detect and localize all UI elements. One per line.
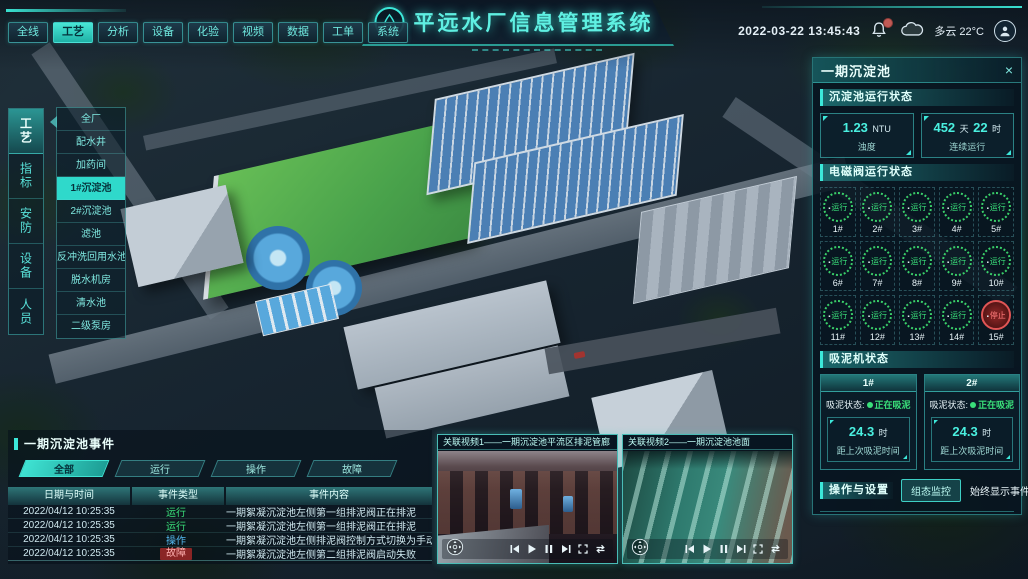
left-sidebar: 工艺 指标 安防 设备 人员 [8,108,44,335]
submenu-item-qingshuichi[interactable]: 清水池 [57,292,125,315]
valve-gauge: 运行7# [860,241,896,291]
valve-status: 运行 [987,202,1006,213]
mud-time-card: 24.3 时 距上次吸泥时间 [827,417,910,462]
sidebar-tab-shebei[interactable]: 设备 [9,244,43,289]
page-title: 平远水厂信息管理系统 [414,7,654,37]
mud-time-label: 距上次吸泥时间 [932,444,1013,457]
mud-machine-status-row: 吸泥状态:正在吸泥 [925,392,1020,415]
valve-gauge: 运行11# [820,295,856,345]
event-content: 一期絮凝沉淀池左侧第二组排泥阀启动失败 [222,546,432,561]
valve-id: 5# [979,224,1013,234]
video-panel-1: 关联视频1——一期沉淀池平流区排泥管廊 [437,434,618,564]
events-title: 一期沉淀池事件 [24,435,115,452]
event-tab-label: 运行 [150,461,170,476]
nav-tab-shipin[interactable]: 视频 [233,22,273,43]
section-title-mud-machines: 吸泥机状态 [820,351,1014,368]
datetime-text: 2022-03-22 13:45:43 [738,24,860,38]
table-row[interactable]: 2022/04/12 10:25:35 故障 一期絮凝沉淀池左侧第二组排泥阀启动… [8,547,432,561]
turbidity-label: 浊度 [821,140,913,153]
play-button[interactable] [702,544,712,554]
uptime-hours-unit: 时 [992,124,1001,134]
top-decoration-line [762,6,1022,8]
always-show-events-label: 始终显示事件: [970,483,1028,498]
table-row[interactable]: 2022/04/12 10:25:35 操作 一期絮凝沉淀池左侧排泥阀控制方式切… [8,533,432,547]
valve-id: 15# [979,332,1013,342]
valve-gauge: 运行6# [820,241,856,291]
event-time: 2022/04/12 10:25:35 [8,534,130,545]
operations-row: 操作与设置 组态监控 始终显示事件: [820,479,1014,512]
mud-time-unit: 时 [982,428,991,438]
top-nav: 全线 工艺 分析 设备 化验 视频 数据 工单 系统 [8,22,408,43]
sidebar-tab-renyuan[interactable]: 人员 [9,289,43,334]
event-tab-run[interactable]: 运行 [115,460,206,477]
process-submenu: 全厂 配水井 加药间 1#沉淀池 2#沉淀池 滤池 反冲洗回用水池 脱水机房 清… [56,107,126,339]
valve-id: 1# [821,224,855,234]
valve-id: 4# [940,224,974,234]
title-accent-bar [14,438,18,450]
valve-status: 运行 [907,256,926,267]
play-button[interactable] [527,544,537,554]
event-content: 一期絮凝沉淀池左侧排泥阀控制方式切换为手动 [222,532,432,547]
loop-button[interactable] [595,544,606,554]
scada-monitor-button[interactable]: 组态监控 [901,479,961,502]
nav-tab-gongdan[interactable]: 工单 [323,22,363,43]
video-thumbnail-detail [623,451,792,469]
submenu-item-peishuijing[interactable]: 配水井 [57,131,125,154]
valve-id: 8# [900,278,934,288]
sidebar-tab-gongyi[interactable]: 工艺 [9,109,43,154]
uptime-label: 连续运行 [922,140,1014,153]
previous-frame-button[interactable] [685,544,695,554]
submenu-item-jiayaojian[interactable]: 加药间 [57,154,125,177]
next-frame-button[interactable] [561,544,571,554]
valve-id: 7# [861,278,895,288]
submenu-item-tuoshuijifang[interactable]: 脱水机房 [57,269,125,292]
submenu-item-quanchang[interactable]: 全厂 [57,108,125,131]
mud-machine-card-1: 1# 吸泥状态:正在吸泥 24.3 时 距上次吸泥时间 [820,374,917,470]
video-controls [627,539,788,559]
uptime-hours: 22 [973,120,987,135]
events-table-header: 日期与时间 事件类型 事件内容 [8,487,432,505]
valve-status: 运行 [828,202,847,213]
events-title-row: 一期沉淀池事件 [8,435,432,452]
column-header-content: 事件内容 [226,487,432,505]
ptz-dpad-control[interactable] [446,538,464,561]
section-title-run-status: 沉淀池运行状态 [820,89,1014,106]
mud-time-card: 24.3 时 距上次吸泥时间 [931,417,1014,462]
valve-gauge: 运行8# [899,241,935,291]
mud-status-label: 吸泥状态: [930,400,969,410]
mud-machine-status-row: 吸泥状态:正在吸泥 [821,392,916,415]
valve-id: 14# [940,332,974,342]
video-panel-2: 关联视频2——一期沉淀池池面 [622,434,793,564]
event-tab-operate[interactable]: 操作 [211,460,302,477]
valve-gauge: 停止15# [978,295,1014,345]
event-content: 一期絮凝沉淀池左侧第一组排泥阀正在排泥 [222,504,432,519]
submenu-pointer [50,116,57,128]
pause-button[interactable] [544,544,554,554]
user-avatar[interactable] [994,20,1016,42]
mud-time-value: 24.3 [849,424,874,439]
event-type: 故障 [160,548,192,560]
valve-gauge: 运行1# [820,187,856,237]
uptime-card: 452 天 22 时 连续运行 [921,113,1015,158]
mud-status-value: 正在吸泥 [978,400,1014,410]
mud-time-label: 距上次吸泥时间 [828,444,909,457]
event-tab-label: 故障 [342,461,362,476]
mud-status-value: 正在吸泥 [875,400,911,410]
sedimentation-tank-panel: 一期沉淀池 × 沉淀池运行状态 1.23 NTU 浊度 452 天 22 时 连… [812,57,1022,515]
notification-badge [883,18,893,28]
turbidity-value: 1.23 [843,120,868,135]
video-thumbnail-detail [438,471,617,534]
valve-gauge: 运行14# [939,295,975,345]
column-header-type: 事件类型 [132,487,224,505]
submenu-item-fanchongxi[interactable]: 反冲洗回用水池 [57,246,125,269]
valve-status: 运行 [828,310,847,321]
mud-status-label: 吸泥状态: [826,400,865,410]
valve-id: 12# [861,332,895,342]
previous-frame-button[interactable] [510,544,520,554]
turbidity-unit: NTU [872,124,891,134]
valve-id: 3# [900,224,934,234]
fullscreen-button[interactable] [753,544,763,554]
nav-tab-gongyi[interactable]: 工艺 [53,22,93,43]
valve-status: 运行 [947,202,966,213]
valve-gauge: 运行2# [860,187,896,237]
panel-header: 一期沉淀池 × [813,58,1021,83]
section-title-valves: 电磁阀运行状态 [820,164,1014,181]
valve-status: 运行 [987,256,1006,267]
valve-status-grid: 运行1# 运行2# 运行3# 运行4# 运行5# 运行6# 运行7# 运行8# … [820,187,1014,345]
valve-gauge: 运行5# [978,187,1014,237]
video-thumbnail-detail [563,496,573,512]
nav-tab-fenxi[interactable]: 分析 [98,22,138,43]
weather-text: 多云 22°C [934,23,984,39]
section-title-operations: 操作与设置 [820,482,893,499]
fullscreen-button[interactable] [578,544,588,554]
app-brand: 平远水厂信息管理系统 [375,7,654,37]
event-time: 2022/04/12 10:25:35 [8,506,130,517]
video-title: 关联视频1——一期沉淀池平流区排泥管廊 [438,435,617,450]
mud-time-value: 24.3 [952,424,977,439]
valve-gauge: 运行10# [978,241,1014,291]
sidebar-tab-anfang[interactable]: 安防 [9,199,43,244]
top-decoration-line [6,9,126,12]
valve-status: 运行 [868,256,887,267]
dashboard: 平远水厂信息管理系统 全线 工艺 分析 设备 化验 视频 数据 工单 系统 20… [0,0,1028,579]
submenu-item-lvchi[interactable]: 滤池 [57,223,125,246]
valve-status: 运行 [868,310,887,321]
video-feed[interactable] [623,451,792,563]
event-type: 操作 [166,536,186,547]
valve-status: 停止 [987,310,1006,321]
valve-status: 运行 [868,202,887,213]
uptime-days: 452 [933,120,955,135]
events-panel: 一期沉淀池事件 全部 运行 操作 故障 日期与时间 事件类型 事件内容 2022… [8,430,432,564]
event-time: 2022/04/12 10:25:35 [8,548,130,559]
submenu-item-erjibengfang[interactable]: 二级泵房 [57,315,125,338]
valve-status: 运行 [907,202,926,213]
top-right-info: 2022-03-22 13:45:43 多云 22°C [738,20,1016,42]
nav-tab-shebei[interactable]: 设备 [143,22,183,43]
ptz-dpad-control[interactable] [631,538,649,561]
valve-gauge: 运行4# [939,187,975,237]
title-dash-line [472,49,602,51]
valve-gauge: 运行3# [899,187,935,237]
video-controls [442,539,613,559]
close-icon[interactable]: × [1005,63,1013,77]
valve-gauge: 运行9# [939,241,975,291]
turbidity-card: 1.23 NTU 浊度 [820,113,914,158]
run-status-cards: 1.23 NTU 浊度 452 天 22 时 连续运行 [820,113,1014,158]
event-time: 2022/04/12 10:25:35 [8,520,130,531]
event-tab-all[interactable]: 全部 [19,460,110,477]
valve-id: 11# [821,332,855,342]
event-filter-tabs: 全部 运行 操作 故障 [22,460,432,477]
nav-tab-quanxian[interactable]: 全线 [8,22,48,43]
nav-tab-xitong[interactable]: 系统 [368,22,408,43]
uptime-days-unit: 天 [960,124,969,134]
weather-cloud-icon [900,22,924,41]
nav-tab-shuju[interactable]: 数据 [278,22,318,43]
panel-title: 一期沉淀池 [821,61,891,80]
valve-id: 6# [821,278,855,288]
loop-button[interactable] [770,544,781,554]
event-tab-label: 操作 [246,461,266,476]
valve-gauge: 运行13# [899,295,935,345]
valve-id: 10# [979,278,1013,288]
video-thumbnail-detail [510,489,522,509]
nav-tab-huayan[interactable]: 化验 [188,22,228,43]
valve-id: 2# [861,224,895,234]
valve-id: 13# [900,332,934,342]
sidebar-tab-zhibiao[interactable]: 指标 [9,154,43,199]
status-dot [970,402,976,408]
video-title: 关联视频2——一期沉淀池池面 [623,435,792,450]
mud-machine-id: 2# [925,375,1020,392]
valve-id: 9# [940,278,974,288]
next-frame-button[interactable] [736,544,746,554]
valve-gauge: 运行12# [860,295,896,345]
column-header-time: 日期与时间 [8,487,130,505]
event-tab-label: 全部 [54,461,74,476]
valve-status: 运行 [947,256,966,267]
valve-status: 运行 [947,310,966,321]
valve-status: 运行 [907,310,926,321]
submenu-item-1-chendianchi[interactable]: 1#沉淀池 [57,177,125,200]
status-dot [867,402,873,408]
notification-bell-icon[interactable] [870,21,890,41]
table-row[interactable]: 2022/04/12 10:25:35 运行 一期絮凝沉淀池左侧第一组排泥阀正在… [8,505,432,519]
mud-machine-cards: 1# 吸泥状态:正在吸泥 24.3 时 距上次吸泥时间 2# 吸泥状态:正在吸泥 [820,374,1014,470]
table-row[interactable]: 2022/04/12 10:25:35 运行 一期絮凝沉淀池左侧第一组排泥阀正在… [8,519,432,533]
event-tab-fault[interactable]: 故障 [307,460,398,477]
event-content: 一期絮凝沉淀池左侧第一组排泥阀正在排泥 [222,518,432,533]
submenu-item-2-chendianchi[interactable]: 2#沉淀池 [57,200,125,223]
video-feed[interactable] [438,451,617,563]
mud-machine-id: 1# [821,375,916,392]
pause-button[interactable] [719,544,729,554]
mud-time-unit: 时 [879,428,888,438]
mud-machine-card-2: 2# 吸泥状态:正在吸泥 24.3 时 距上次吸泥时间 [924,374,1021,470]
valve-status: 运行 [828,256,847,267]
